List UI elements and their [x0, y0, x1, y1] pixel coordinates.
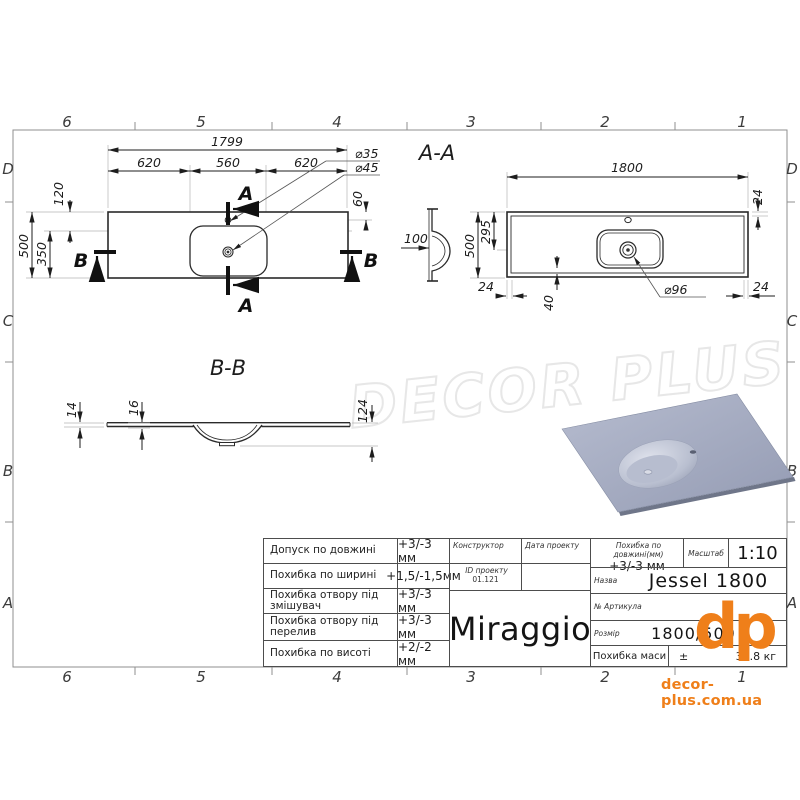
tolerance-value: +1,5/-1,5мм	[397, 563, 450, 589]
dim-wall-right: 24	[753, 279, 769, 294]
zone-row-label: B	[3, 462, 13, 480]
project-id-label: ID проекту	[450, 564, 521, 575]
dim-offset-basin: 350	[34, 242, 49, 266]
brand-name: Miraggio	[449, 610, 591, 648]
dim-offset-faucet: 60	[350, 191, 365, 207]
size-label: Розмір	[591, 627, 620, 638]
tolerance-value: +3/-3 мм	[397, 538, 450, 564]
section-aa-title: A-A	[417, 141, 455, 165]
section-mark-a-bottom: A	[237, 295, 254, 317]
zone-row-label: D	[786, 160, 798, 178]
zone-col-label: 1	[737, 113, 747, 131]
dim-wall-left: 24	[478, 279, 494, 294]
model-3d-render	[562, 394, 796, 516]
project-id-value: 01.121	[450, 575, 521, 584]
zone-row-label: A	[2, 594, 13, 612]
drawing-sheet: DECOR PLUS	[0, 0, 800, 800]
section-aa: A-A 100	[401, 141, 775, 311]
dim-seg-left: 620	[137, 155, 161, 170]
constructor-cell: Конструктор	[449, 538, 522, 564]
section-bb: B-B	[64, 356, 378, 462]
scale-label: Масштаб	[688, 549, 724, 558]
dim-profile-depth: 100	[404, 231, 428, 246]
decor-plus-url[interactable]: decor-plus.com.ua	[661, 677, 800, 709]
date-cell: Дата проекту	[521, 538, 591, 564]
mass-prefix: ±	[679, 650, 688, 663]
dim-section-height: 500	[462, 234, 477, 258]
tolerance-label: Допуск по довжині	[263, 538, 398, 564]
zone-col-label: 4	[332, 668, 342, 686]
zone-row-label: D	[2, 160, 14, 178]
dim-height-total: 500	[16, 234, 31, 258]
dim-faucet-diameter: ⌀35	[355, 146, 378, 161]
zone-col-label: 5	[196, 113, 206, 131]
dim-edge-thickness: 16	[126, 400, 141, 416]
tolerance-label: Похибка отвору під перелив	[263, 613, 398, 641]
section-mark-a-top: A	[237, 183, 254, 205]
scale-cell: Масштаб	[683, 538, 729, 568]
section-bb-title: B-B	[210, 356, 246, 380]
zone-col-label: 4	[332, 113, 342, 131]
zone-col-label: 6	[62, 668, 72, 686]
zone-col-label: 6	[62, 113, 72, 131]
dim-seg-mid: 560	[216, 155, 240, 170]
dim-offset-top: 120	[51, 182, 66, 206]
length-tolerance-cell: Похибка по довжині(мм) +3/-3 мм	[590, 538, 684, 568]
dim-basin-depth: 124	[355, 399, 370, 423]
zone-col-label: 3	[466, 668, 476, 686]
zone-row-label: A	[786, 594, 797, 612]
dim-drain-position: 295	[478, 220, 493, 244]
dim-drain-diameter: ⌀45	[355, 160, 378, 175]
model-drain	[644, 470, 652, 474]
zone-col-label: 2	[600, 113, 610, 131]
dim-drain-offset: 40	[541, 295, 556, 311]
scale-value: 1:10	[737, 543, 777, 564]
tolerance-value: +3/-3 мм	[397, 588, 450, 614]
dim-drain-diameter-96: ⌀96	[664, 282, 687, 297]
section-mark-b-left: B	[74, 250, 88, 272]
tolerance-label: Похибка по висоті	[263, 640, 398, 667]
zone-row-label: C	[3, 312, 14, 330]
zone-col-label: 5	[196, 668, 206, 686]
top-view: 1799 620 560 620 ⌀35 ⌀45 120 500 350 60 …	[16, 134, 380, 317]
section-drain-hole	[620, 242, 636, 258]
dim-section-length: 1800	[611, 160, 643, 175]
dim-seg-right: 620	[294, 155, 318, 170]
scale-value-cell: 1:10	[728, 538, 787, 568]
zone-col-label: 2	[600, 668, 610, 686]
name-label: Назва	[591, 574, 617, 585]
article-label: № Артикула	[591, 600, 642, 611]
dim-slab-thickness: 14	[64, 402, 79, 418]
dim-wall-top: 24	[750, 189, 765, 205]
tolerance-value: +2/-2 мм	[397, 640, 450, 667]
constructor-label: Конструктор	[450, 539, 521, 550]
project-id-cell: ID проекту 01.121	[449, 563, 522, 591]
model-faucet-hole	[690, 450, 696, 454]
zone-col-label: 3	[466, 113, 476, 131]
side-profile	[427, 209, 450, 281]
zone-row-label: C	[787, 312, 798, 330]
tolerance-label: Похибка отвору під змішувач	[263, 588, 398, 614]
decor-plus-logo: dp	[694, 596, 773, 658]
empty-cell	[521, 563, 591, 591]
dim-length-total: 1799	[211, 134, 243, 149]
tolerance-value: +3/-3 мм	[397, 613, 450, 641]
section-mark-b-right: B	[364, 250, 378, 272]
length-tolerance-label: Похибка по довжині(мм)	[591, 539, 683, 559]
brand-cell: Miraggio	[449, 590, 591, 667]
tolerance-label: Похибка по ширині	[263, 563, 398, 589]
mass-label-cell: Похибка маси	[590, 645, 669, 667]
mass-label: Похибка маси	[593, 651, 666, 662]
date-label: Дата проекту	[522, 539, 590, 550]
